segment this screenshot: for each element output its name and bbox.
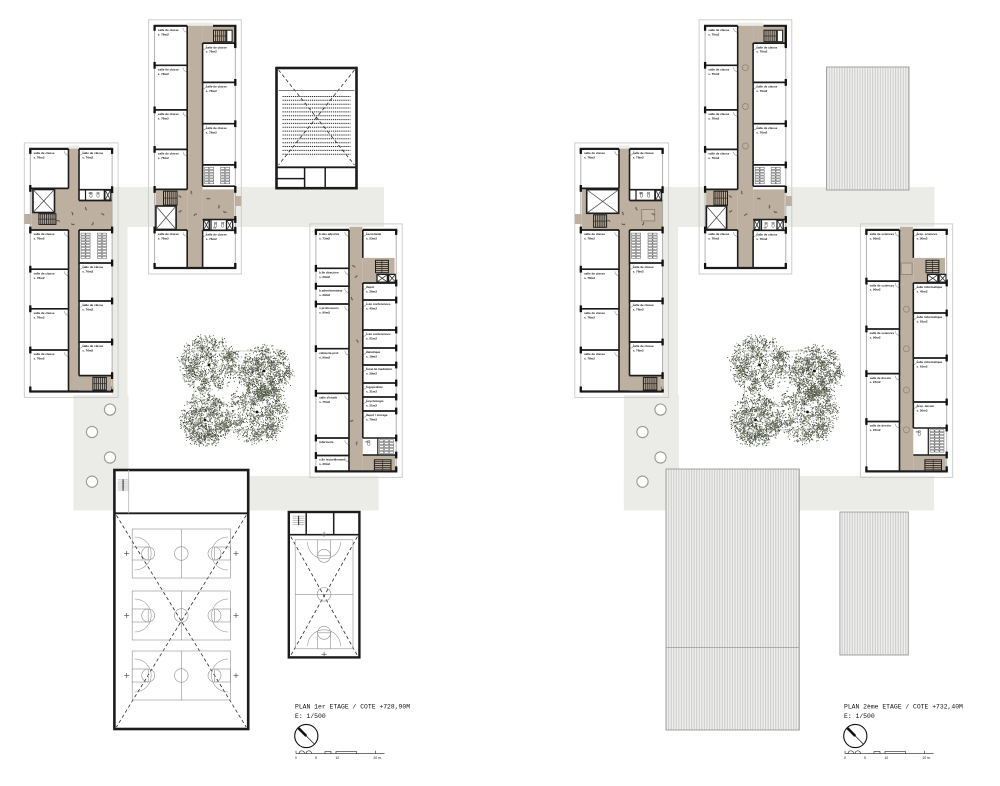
- svg-text:dietetique: dietetique: [366, 350, 380, 354]
- svg-text:secretariat: secretariat: [366, 232, 381, 236]
- svg-text:salle de classe: salle de classe: [82, 151, 103, 155]
- svg-text:salle de classe: salle de classe: [708, 152, 729, 156]
- svg-text:salle de classe: salle de classe: [82, 303, 103, 307]
- svg-text:s. 76m2: s. 76m2: [82, 270, 93, 274]
- svg-text:s. 29m2: s. 29m2: [366, 372, 377, 376]
- svg-text:s.de conferences: s.de conferences: [366, 332, 391, 336]
- svg-text:s. 76m2: s. 76m2: [206, 237, 217, 241]
- svg-text:s. 76m2: s. 76m2: [82, 156, 93, 160]
- svg-text:salle de classe: salle de classe: [206, 233, 227, 237]
- svg-text:salle de classe: salle de classe: [206, 126, 227, 130]
- svg-text:0: 0: [844, 756, 846, 760]
- svg-text:salle de classe: salle de classe: [206, 45, 227, 49]
- svg-text:salle de classe: salle de classe: [633, 303, 654, 307]
- svg-text:10: 10: [336, 756, 340, 760]
- svg-text:salle de classe: salle de classe: [34, 271, 55, 275]
- svg-text:local de mediation: local de mediation: [366, 367, 392, 371]
- svg-text:b.lle direction: b.lle direction: [319, 271, 339, 275]
- svg-text:s. 76m2: s. 76m2: [584, 357, 595, 361]
- svg-text:salle de classe: salle de classe: [158, 112, 179, 116]
- svg-text:salle de classe: salle de classe: [34, 311, 55, 315]
- svg-text:salle de classe: salle de classe: [633, 344, 654, 348]
- svg-text:b.administrateur: b.administrateur: [319, 288, 343, 292]
- svg-text:salle de dessin: salle de dessin: [870, 424, 892, 428]
- svg-text:s. 76m2: s. 76m2: [584, 237, 595, 241]
- svg-text:s. 76m2: s. 76m2: [633, 349, 644, 353]
- svg-text:salle d'etude: salle d'etude: [319, 396, 337, 400]
- svg-text:s. 76m2: s. 76m2: [158, 156, 169, 160]
- svg-text:5: 5: [315, 756, 317, 760]
- svg-text:s. 76m2: s. 76m2: [708, 237, 719, 241]
- svg-text:s. 91m2: s. 91m2: [917, 320, 928, 324]
- svg-text:s. 76m2: s. 76m2: [206, 89, 217, 93]
- svg-text:salle de classe: salle de classe: [633, 265, 654, 269]
- svg-text:s. 76m2: s. 76m2: [34, 156, 45, 160]
- svg-text:s. 45m2: s. 45m2: [366, 307, 377, 311]
- svg-text:cafeteria prof.: cafeteria prof.: [319, 351, 339, 355]
- svg-text:salle de classe: salle de classe: [34, 151, 55, 155]
- svg-text:salle de classe: salle de classe: [708, 112, 729, 116]
- svg-text:salle de sciences: salle de sciences: [870, 331, 895, 335]
- svg-text:salle informatique: salle informatique: [917, 285, 943, 289]
- svg-text:s. 90m2: s. 90m2: [870, 237, 881, 241]
- svg-text:salle informatique: salle informatique: [917, 315, 943, 319]
- svg-text:salle de sciences: salle de sciences: [870, 283, 895, 287]
- svg-text:logopediste: logopediste: [366, 385, 383, 389]
- svg-text:salle de classe: salle de classe: [756, 45, 777, 49]
- svg-text:s. 76m2: s. 76m2: [34, 237, 45, 241]
- svg-text:s.de conferences: s.de conferences: [366, 302, 391, 306]
- svg-text:s. 76m2: s. 76m2: [34, 315, 45, 319]
- svg-text:salle informatique: salle informatique: [917, 360, 943, 364]
- svg-text:salle de classe: salle de classe: [584, 352, 605, 356]
- svg-text:s. 76m2: s. 76m2: [708, 117, 719, 121]
- svg-text:salle de classe: salle de classe: [708, 232, 729, 236]
- svg-text:s. 97m2: s. 97m2: [870, 380, 881, 384]
- svg-text:depot / storage: depot / storage: [366, 413, 388, 417]
- svg-text:salle de classe: salle de classe: [584, 271, 605, 275]
- svg-text:s. 76m2: s. 76m2: [206, 50, 217, 54]
- svg-text:salle de classe: salle de classe: [584, 232, 605, 236]
- svg-text:s. 29m2: s. 29m2: [319, 275, 330, 279]
- svg-text:s. 76m2: s. 76m2: [158, 117, 169, 121]
- svg-text:PLAN 2ème ETAGE / COTE +732,40: PLAN 2ème ETAGE / COTE +732,40M: [844, 704, 963, 711]
- svg-text:s.lle recueillement: s.lle recueillement: [319, 458, 345, 462]
- svg-text:s. 76m2: s. 76m2: [82, 308, 93, 312]
- svg-text:s. 76m2: s. 76m2: [34, 276, 45, 280]
- svg-text:salle de dessin: salle de dessin: [870, 376, 892, 380]
- svg-text:salle de classe: salle de classe: [82, 265, 103, 269]
- svg-text:s. 21m2: s. 21m2: [366, 390, 377, 394]
- svg-text:salle de classe: salle de classe: [34, 352, 55, 356]
- svg-text:s. 21m2: s. 21m2: [366, 404, 377, 408]
- svg-text:salle de classe: salle de classe: [708, 68, 729, 72]
- svg-text:s. 76m2: s. 76m2: [708, 72, 719, 76]
- svg-text:salle de classe: salle de classe: [584, 311, 605, 315]
- svg-text:s. 91m2: s. 91m2: [917, 365, 928, 369]
- svg-text:salle de classe: salle de classe: [756, 85, 777, 89]
- svg-text:prep. dessin: prep. dessin: [917, 404, 935, 408]
- svg-text:s. 97m2: s. 97m2: [870, 428, 881, 432]
- svg-text:s. 76m2: s. 76m2: [756, 130, 767, 134]
- svg-text:s.professeurs: s.professeurs: [319, 306, 339, 310]
- svg-text:s. 21m2: s. 21m2: [366, 337, 377, 341]
- svg-text:salle de classe: salle de classe: [206, 85, 227, 89]
- svg-text:s. 76m2: s. 76m2: [633, 308, 644, 312]
- svg-text:s. 76m2: s. 76m2: [633, 270, 644, 274]
- svg-text:s. 76m2: s. 76m2: [158, 237, 169, 241]
- svg-text:PLAN 1er ETAGE / COTE +728,90M: PLAN 1er ETAGE / COTE +728,90M: [295, 704, 410, 711]
- svg-text:s. 76m2: s. 76m2: [708, 32, 719, 36]
- svg-text:salle de classe: salle de classe: [34, 232, 55, 236]
- svg-text:20 m.: 20 m.: [374, 756, 382, 760]
- svg-text:s. 76m2: s. 76m2: [584, 156, 595, 160]
- svg-text:s. 53m2: s. 53m2: [366, 237, 377, 241]
- svg-text:s. 90m2: s. 90m2: [319, 355, 330, 359]
- svg-text:0: 0: [295, 756, 297, 760]
- svg-text:s. 50m2: s. 50m2: [917, 237, 928, 241]
- svg-text:s. 76m2: s. 76m2: [584, 276, 595, 280]
- svg-text:s. 76m2: s. 76m2: [584, 315, 595, 319]
- svg-text:s. 73m2: s. 73m2: [319, 237, 330, 241]
- svg-text:s. 19m2: s. 19m2: [366, 355, 377, 359]
- svg-text:s. 76m2: s. 76m2: [206, 130, 217, 134]
- svg-text:salle de classe: salle de classe: [708, 28, 729, 32]
- svg-text:s. 45m2: s. 45m2: [917, 290, 928, 294]
- svg-text:s. 36m2: s. 36m2: [319, 462, 330, 466]
- svg-text:s. 76m2: s. 76m2: [82, 349, 93, 353]
- svg-text:s. 76m2: s. 76m2: [756, 89, 767, 93]
- svg-text:infermerie: infermerie: [319, 440, 334, 444]
- svg-text:salle de classe: salle de classe: [82, 344, 103, 348]
- svg-text:salle de classe: salle de classe: [633, 151, 654, 155]
- svg-text:E: 1/500: E: 1/500: [844, 713, 875, 720]
- svg-text:s. 29m2: s. 29m2: [366, 290, 377, 294]
- svg-text:s. 76m2: s. 76m2: [756, 50, 767, 54]
- svg-text:s. 76m2: s. 76m2: [34, 357, 45, 361]
- svg-text:salle de classe: salle de classe: [756, 126, 777, 130]
- svg-text:s. 76m2: s. 76m2: [158, 72, 169, 76]
- svg-text:salle de classe: salle de classe: [584, 151, 605, 155]
- svg-text:s. 76m2: s. 76m2: [708, 156, 719, 160]
- svg-text:5: 5: [864, 756, 866, 760]
- svg-text:10: 10: [885, 756, 889, 760]
- svg-text:psychologie: psychologie: [366, 399, 384, 403]
- svg-text:s. 75m2: s. 75m2: [319, 400, 330, 404]
- svg-text:E: 1/500: E: 1/500: [295, 713, 326, 720]
- svg-text:s. 76m2: s. 76m2: [756, 237, 767, 241]
- svg-text:s. 90m2: s. 90m2: [319, 311, 330, 315]
- svg-text:s. 76m2: s. 76m2: [158, 32, 169, 36]
- svg-text:s. 90m2: s. 90m2: [870, 288, 881, 292]
- svg-text:s. 90m2: s. 90m2: [870, 336, 881, 340]
- svg-text:salle de classe: salle de classe: [158, 28, 179, 32]
- svg-text:salle de classe: salle de classe: [158, 232, 179, 236]
- svg-text:b.des adjoints: b.des adjoints: [319, 232, 340, 236]
- svg-text:salle de classe: salle de classe: [756, 233, 777, 237]
- svg-text:s. 50m2: s. 50m2: [917, 409, 928, 413]
- svg-text:s. 76m2: s. 76m2: [633, 156, 644, 160]
- svg-text:salle de classe: salle de classe: [158, 152, 179, 156]
- svg-text:s. 70m2: s. 70m2: [366, 418, 377, 422]
- svg-text:salle de classe: salle de classe: [158, 68, 179, 72]
- svg-text:prep. sciences: prep. sciences: [917, 232, 938, 236]
- svg-text:20 m.: 20 m.: [923, 756, 931, 760]
- svg-text:s. 29m2: s. 29m2: [319, 293, 330, 297]
- svg-text:salle de sciences: salle de sciences: [870, 232, 895, 236]
